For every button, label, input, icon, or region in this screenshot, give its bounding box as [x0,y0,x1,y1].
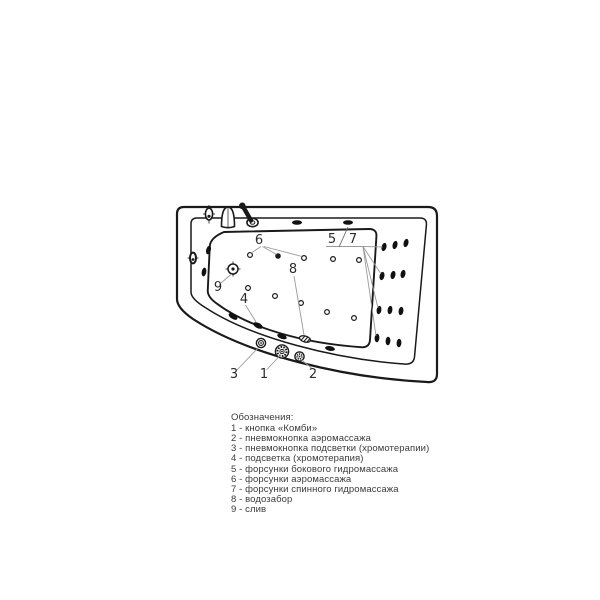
callout-3: 3 [230,367,238,382]
callout-9: 9 [214,280,222,295]
callout-8: 8 [289,262,297,277]
legend-title: Обозначения: [231,413,429,423]
callout-6: 6 [255,233,263,248]
legend: Обозначения: 1 - кнопка «Комби» 2 - пнев… [231,413,429,516]
callout-7: 7 [349,232,357,247]
callout-2: 2 [309,367,317,382]
light-pneumo-button [256,338,265,347]
kombi-button [275,345,288,358]
legend-item-9: 9 - слив [231,505,429,515]
callout-4: 4 [240,292,248,307]
callout-5: 5 [328,232,336,247]
aero-pneumo-button [295,352,304,361]
legend-item-4: 4 - подсветка (хромотерапия) [231,454,429,464]
callout-1: 1 [260,367,268,382]
faucet-spout-icon [222,207,235,228]
page: 6 5 7 8 9 4 3 1 2 Обозначения: 1 - кнопк… [0,0,600,600]
